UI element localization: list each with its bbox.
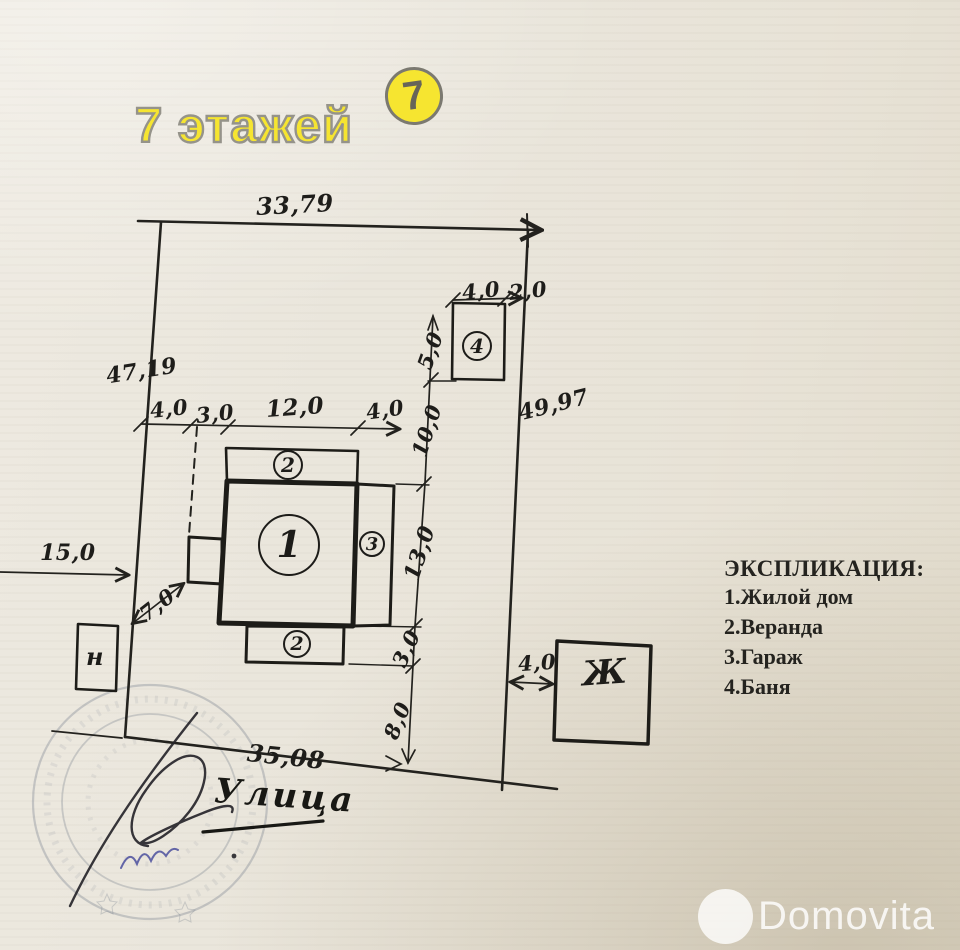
dim-neighbor-gap: 4,0: [517, 649, 557, 677]
bath-number-circle: 4: [462, 331, 492, 361]
dim-plot-top: 33,79: [255, 188, 334, 221]
dimension-lines-top: [134, 417, 399, 535]
legend-item-bath: 4.Баня: [724, 672, 925, 702]
dim-chain-3-0: 3,0: [195, 399, 235, 428]
dim-chain-4-0b: 4,0: [364, 394, 405, 424]
signature: [70, 713, 236, 906]
house-number-circle: 1: [258, 514, 320, 576]
neighbor-building-letter: Ж: [581, 651, 628, 694]
bath-number: 4: [470, 334, 484, 358]
dim-bath-width: 4,0: [461, 276, 501, 305]
stamp-star: [97, 894, 117, 914]
domovita-logo-icon: [698, 889, 753, 944]
domovita-watermark: Domovita: [758, 894, 935, 939]
garage-number: 3: [366, 534, 379, 555]
shed-letter: н: [86, 642, 104, 671]
dimension-lines-misc: [0, 572, 552, 684]
veranda-bottom-number: 2: [290, 633, 303, 655]
legend-item-house: 1.Жилой дом: [724, 582, 925, 612]
veranda-top-number-circle: 2: [273, 450, 303, 480]
house-number: 1: [276, 524, 301, 566]
brand-watermark-text: 7 этажей: [135, 98, 353, 154]
veranda-top-number: 2: [281, 453, 295, 477]
dim-bath-gap: 2,0: [508, 276, 548, 305]
brand-watermark-digit: 7: [400, 72, 428, 120]
dim-offset-left: 15,0: [40, 540, 96, 566]
legend-item-veranda: 2.Веранда: [724, 612, 925, 642]
legend-item-garage: 3.Гараж: [724, 642, 925, 672]
dim-chain-4-0: 4,0: [149, 394, 189, 423]
veranda-bottom-number-circle: 2: [283, 630, 311, 658]
dim-chain-12-0: 12,0: [265, 392, 325, 423]
legend-block: ЭКСПЛИКАЦИЯ: 1.Жилой дом 2.Веранда 3.Гар…: [724, 556, 925, 702]
garage-number-circle: 3: [359, 531, 385, 557]
annex-outline: [188, 537, 222, 584]
legend-title: ЭКСПЛИКАЦИЯ:: [724, 556, 925, 582]
scanned-site-plan: 7 этажей 7 33,79 47,19 49,97 35,08 15,0 …: [0, 0, 960, 950]
